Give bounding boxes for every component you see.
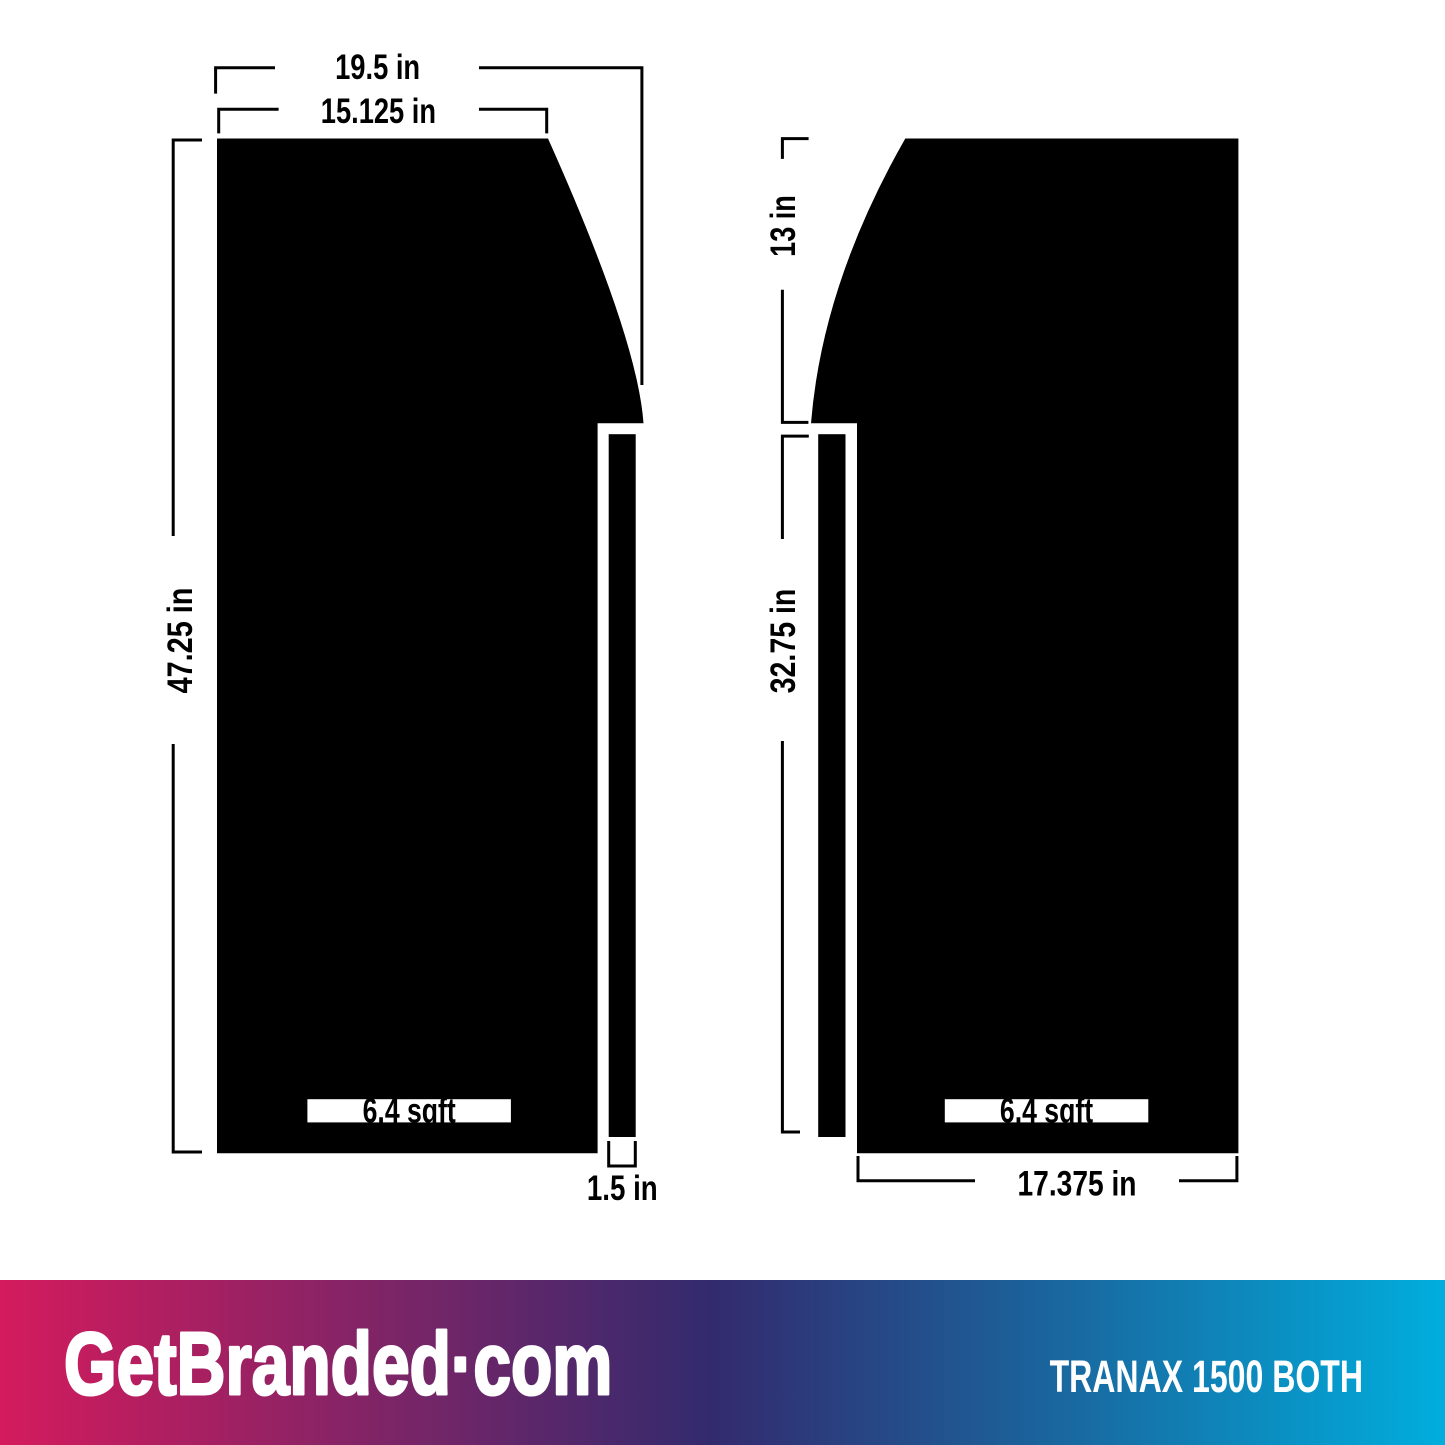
svg-text:17.375 in: 17.375 in — [1018, 1163, 1137, 1203]
svg-text:15.125 in: 15.125 in — [321, 90, 436, 130]
svg-text:32.75 in: 32.75 in — [763, 589, 803, 694]
svg-text:13 in: 13 in — [764, 195, 803, 257]
svg-text:1.5 in: 1.5 in — [587, 1168, 658, 1208]
svg-text:6.4 sqft: 6.4 sqft — [1000, 1091, 1094, 1131]
svg-text:6.4 sqft: 6.4 sqft — [363, 1091, 457, 1131]
svg-text:TRANAX 1500 BOTH: TRANAX 1500 BOTH — [1050, 1351, 1363, 1402]
svg-text:19.5 in: 19.5 in — [335, 47, 420, 87]
svg-text:GetBranded·com: GetBranded·com — [64, 1314, 612, 1413]
svg-text:47.25 in: 47.25 in — [160, 588, 199, 694]
